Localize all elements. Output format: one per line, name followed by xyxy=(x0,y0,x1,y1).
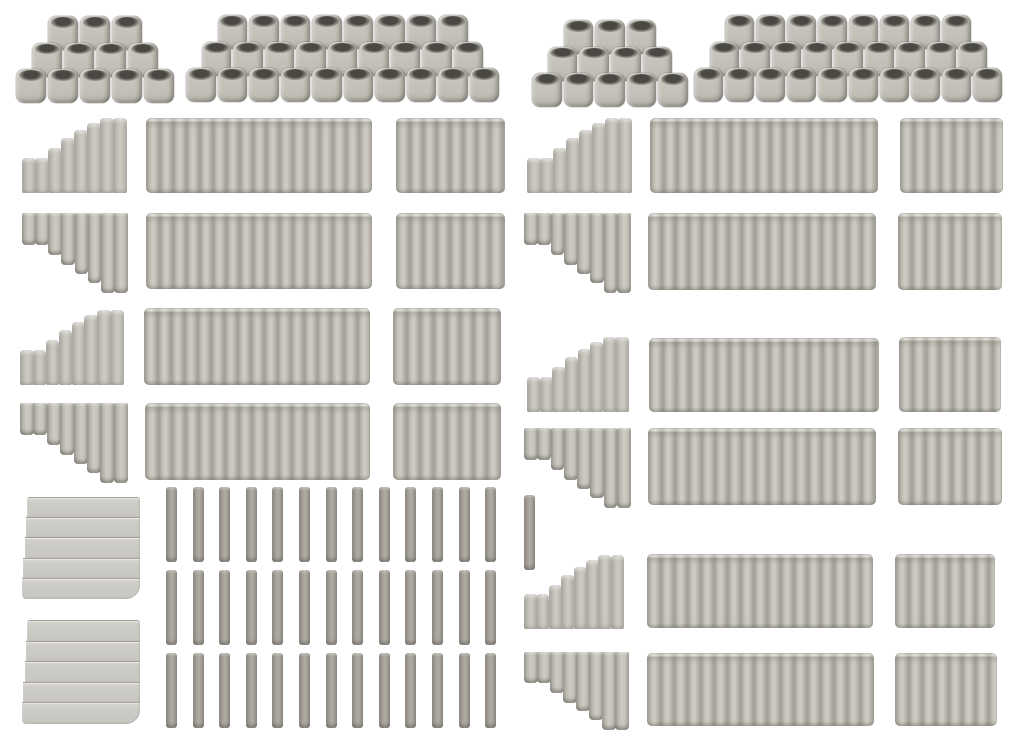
pile-opening-shadow xyxy=(19,70,44,80)
wall-section-short xyxy=(898,428,1002,505)
pile-opening-shadow xyxy=(759,16,783,26)
board-slat xyxy=(25,537,140,558)
pile-cylinder xyxy=(532,73,562,107)
pile-opening-shadow xyxy=(629,21,653,31)
wall-section-short xyxy=(895,653,997,726)
step-rib xyxy=(579,130,593,193)
pile-cylinder xyxy=(80,69,110,103)
step-rib xyxy=(72,322,86,385)
step-rib xyxy=(592,123,606,193)
step-rib xyxy=(552,367,565,412)
pile-opening-shadow xyxy=(960,43,984,53)
step-rib xyxy=(75,213,89,274)
step-rib xyxy=(537,652,551,683)
step-rib xyxy=(100,118,114,193)
board-slat xyxy=(25,661,140,683)
pile-opening-shadow xyxy=(330,43,354,53)
step-rib xyxy=(564,428,578,480)
single-pile-strip xyxy=(524,495,535,570)
single-pile-strip xyxy=(299,570,310,645)
step-rib xyxy=(110,310,124,385)
single-pile-strip xyxy=(326,653,337,728)
pile-opening-shadow xyxy=(283,69,307,79)
pile-opening-shadow xyxy=(566,21,590,31)
pile-opening-shadow xyxy=(267,43,291,53)
pile-cylinder xyxy=(470,68,500,102)
step-rib xyxy=(590,213,604,283)
pile-opening-shadow xyxy=(441,16,465,26)
step-rib xyxy=(100,403,114,483)
step-rib xyxy=(550,652,564,693)
pile-opening-shadow xyxy=(759,69,783,79)
pile-opening-shadow xyxy=(629,74,653,84)
step-rib xyxy=(598,555,611,629)
pile-opening-shadow xyxy=(598,74,622,84)
pile-cylinder xyxy=(564,73,594,107)
step-rib xyxy=(101,213,115,293)
pile-cylinder xyxy=(818,68,847,102)
pile-opening-shadow xyxy=(83,17,108,27)
wall-section-step-up xyxy=(524,555,623,629)
pile-cylinder xyxy=(756,68,785,102)
pile-opening-shadow xyxy=(35,44,60,54)
step-rib xyxy=(578,349,591,412)
wall-section-long xyxy=(145,403,370,480)
smooth-board-stack xyxy=(22,497,140,598)
pile-opening-shadow xyxy=(147,70,172,80)
step-rib xyxy=(47,403,61,445)
step-rib xyxy=(524,652,538,683)
step-rib xyxy=(537,213,551,245)
pile-opening-shadow xyxy=(51,17,76,27)
step-rib xyxy=(590,342,603,412)
pile-opening-shadow xyxy=(945,69,969,79)
pile-opening-shadow xyxy=(805,43,829,53)
pile-opening-shadow xyxy=(67,44,92,54)
single-pile-strip xyxy=(166,570,177,645)
pile-cylinder xyxy=(595,73,625,107)
step-rib xyxy=(574,567,587,629)
board-slat xyxy=(27,497,140,518)
step-rib xyxy=(33,350,47,385)
pile-opening-shadow xyxy=(566,74,590,84)
step-rib xyxy=(537,428,551,460)
step-rib xyxy=(615,652,629,730)
pile-cylinder xyxy=(16,69,46,103)
pile-cylinder xyxy=(627,73,657,107)
single-pile-strip xyxy=(405,653,416,728)
single-pile-strip xyxy=(272,487,283,562)
step-rib xyxy=(590,428,604,498)
single-pile-strip xyxy=(459,653,470,728)
model-parts-photo xyxy=(0,0,1024,748)
pile-opening-shadow xyxy=(945,16,969,26)
single-pile-strip xyxy=(219,653,230,728)
step-rib xyxy=(605,118,619,193)
pile-cylinder xyxy=(725,68,754,102)
single-pile-strip xyxy=(379,487,390,562)
pile-opening-shadow xyxy=(774,43,798,53)
pile-opening-shadow xyxy=(883,16,907,26)
board-slat xyxy=(26,641,140,663)
step-rib xyxy=(551,213,565,255)
pile-opening-shadow xyxy=(83,70,108,80)
pile-opening-shadow xyxy=(409,16,433,26)
pile-opening-shadow xyxy=(728,69,752,79)
step-rib xyxy=(59,330,73,385)
wall-section-step-down xyxy=(524,213,630,293)
step-rib xyxy=(611,555,624,629)
single-pile-strip xyxy=(326,487,337,562)
single-pile-strip xyxy=(432,487,443,562)
single-pile-strip xyxy=(272,653,283,728)
pile-opening-shadow xyxy=(821,16,845,26)
wall-section-step-up xyxy=(527,118,631,193)
pile-cylinder xyxy=(911,68,940,102)
pile-opening-shadow xyxy=(598,21,622,31)
pile-opening-shadow xyxy=(409,69,433,79)
single-pile-strip xyxy=(193,570,204,645)
pile-opening-shadow xyxy=(362,43,386,53)
pile-opening-shadow xyxy=(790,16,814,26)
pile-cylinder xyxy=(112,69,142,103)
wall-section-short xyxy=(396,118,505,193)
wall-section-step-up xyxy=(20,310,123,385)
step-rib xyxy=(577,428,591,489)
single-pile-strip xyxy=(219,570,230,645)
pile-cylinder xyxy=(880,68,909,102)
wall-section-long xyxy=(647,653,874,726)
step-rib xyxy=(617,213,631,293)
step-rib xyxy=(524,428,538,460)
single-pile-strip xyxy=(193,487,204,562)
step-rib xyxy=(551,428,565,470)
wall-section-step-up xyxy=(527,337,628,412)
pile-opening-shadow xyxy=(661,74,685,84)
pile-opening-shadow xyxy=(836,43,860,53)
wall-section-long xyxy=(146,118,372,193)
wall-section-long xyxy=(650,118,878,193)
step-rib xyxy=(524,594,537,629)
pile-opening-shadow xyxy=(743,43,767,53)
step-rib xyxy=(603,337,616,412)
wall-section-long xyxy=(648,213,876,290)
step-rib xyxy=(114,213,128,293)
single-pile-strip xyxy=(352,487,363,562)
pile-cylinder xyxy=(658,73,688,107)
step-rib xyxy=(114,403,128,483)
single-pile-strip xyxy=(379,653,390,728)
step-rib xyxy=(549,585,562,629)
pile-opening-shadow xyxy=(883,69,907,79)
single-pile-strip xyxy=(352,570,363,645)
pile-opening-shadow xyxy=(131,44,156,54)
pile-opening-shadow xyxy=(914,16,938,26)
pile-cylinder xyxy=(973,68,1002,102)
step-rib xyxy=(563,652,577,703)
pile-opening-shadow xyxy=(456,43,480,53)
single-pile-strip xyxy=(432,653,443,728)
pile-opening-shadow xyxy=(852,69,876,79)
single-pile-strip xyxy=(219,487,230,562)
single-pile-strip xyxy=(326,570,337,645)
pile-opening-shadow xyxy=(220,16,244,26)
step-rib xyxy=(35,158,49,193)
pile-cylinder xyxy=(281,68,311,102)
pile-opening-shadow xyxy=(252,16,276,26)
wall-section-step-down xyxy=(524,428,630,508)
pile-opening-shadow xyxy=(393,43,417,53)
step-rib xyxy=(602,652,616,730)
pile-cylinder xyxy=(787,68,816,102)
step-rib xyxy=(20,350,34,385)
board-slat xyxy=(26,517,140,538)
single-pile-strip xyxy=(485,653,496,728)
pile-opening-shadow xyxy=(441,69,465,79)
pile-opening-shadow xyxy=(99,44,124,54)
pile-opening-shadow xyxy=(867,43,891,53)
wall-section-long xyxy=(648,428,876,505)
pile-opening-shadow xyxy=(614,48,638,58)
pile-opening-shadow xyxy=(283,16,307,26)
step-rib xyxy=(60,403,74,455)
step-rib xyxy=(35,213,49,245)
pile-cylinder xyxy=(312,68,342,102)
pile-cylinder xyxy=(344,68,374,102)
pile-opening-shadow xyxy=(728,16,752,26)
smooth-board-stack xyxy=(22,620,140,723)
pile-opening-shadow xyxy=(790,69,814,79)
pile-opening-shadow xyxy=(712,43,736,53)
step-rib xyxy=(604,428,618,508)
wall-section-short xyxy=(898,213,1002,290)
single-pile-strip xyxy=(485,487,496,562)
pile-cylinder xyxy=(249,68,279,102)
step-rib xyxy=(553,148,567,193)
single-pile-strip xyxy=(459,570,470,645)
pile-cylinder xyxy=(942,68,971,102)
step-rib xyxy=(527,377,540,412)
single-pile-strip xyxy=(246,570,257,645)
step-rib xyxy=(617,428,631,508)
single-pile-strip xyxy=(405,487,416,562)
pile-opening-shadow xyxy=(315,16,339,26)
single-pile-strip xyxy=(432,570,443,645)
wall-section-short xyxy=(393,308,501,385)
pile-cylinder xyxy=(144,69,174,103)
pile-opening-shadow xyxy=(115,17,140,27)
single-pile-strip xyxy=(246,653,257,728)
step-rib xyxy=(577,213,591,274)
pile-cylinder xyxy=(48,69,78,103)
pile-cylinder xyxy=(438,68,468,102)
pile-cylinder xyxy=(849,68,878,102)
wall-section-long xyxy=(144,308,370,385)
pile-cylinder xyxy=(186,68,216,102)
step-rib xyxy=(61,213,75,265)
step-rib xyxy=(576,652,590,711)
pile-opening-shadow xyxy=(914,69,938,79)
step-rib xyxy=(97,310,111,385)
pile-opening-shadow xyxy=(929,43,953,53)
single-pile-strip xyxy=(166,653,177,728)
step-rib xyxy=(586,560,599,629)
pile-opening-shadow xyxy=(697,69,721,79)
board-slat xyxy=(23,558,140,579)
wall-section-long xyxy=(647,554,873,628)
pile-opening-shadow xyxy=(472,69,496,79)
step-rib xyxy=(61,138,75,193)
wall-section-step-down xyxy=(524,652,628,730)
pile-cylinder xyxy=(694,68,723,102)
step-rib xyxy=(87,123,101,193)
step-rib xyxy=(113,118,127,193)
step-rib xyxy=(46,340,60,385)
pile-cylinder xyxy=(218,68,248,102)
single-pile-strip xyxy=(299,653,310,728)
pile-opening-shadow xyxy=(976,69,1000,79)
pile-opening-shadow xyxy=(645,48,669,58)
wall-section-step-up xyxy=(22,118,126,193)
pile-cylinder xyxy=(407,68,437,102)
step-rib xyxy=(48,213,62,255)
step-rib xyxy=(540,377,553,412)
step-rib xyxy=(561,575,574,629)
wall-section-short xyxy=(899,337,1001,412)
pile-opening-shadow xyxy=(115,70,140,80)
step-rib xyxy=(540,158,554,193)
step-rib xyxy=(20,403,34,435)
step-rib xyxy=(33,403,47,435)
pile-opening-shadow xyxy=(378,16,402,26)
single-pile-strip xyxy=(246,487,257,562)
step-rib xyxy=(527,158,541,193)
step-rib xyxy=(589,652,603,720)
step-rib xyxy=(74,130,88,193)
step-rib xyxy=(604,213,618,293)
single-pile-strip xyxy=(459,487,470,562)
pile-opening-shadow xyxy=(51,70,76,80)
single-pile-strip xyxy=(272,570,283,645)
wall-section-short xyxy=(393,403,501,480)
board-slat xyxy=(22,702,140,724)
step-rib xyxy=(524,213,538,245)
pile-opening-shadow xyxy=(378,69,402,79)
wall-section-short xyxy=(895,554,995,628)
step-rib xyxy=(618,118,632,193)
pile-opening-shadow xyxy=(535,74,559,84)
pile-opening-shadow xyxy=(425,43,449,53)
step-rib xyxy=(565,357,578,412)
step-rib xyxy=(74,403,88,464)
pile-opening-shadow xyxy=(582,48,606,58)
step-rib xyxy=(615,337,628,412)
pile-opening-shadow xyxy=(346,16,370,26)
wall-section-step-down xyxy=(20,403,127,483)
single-pile-strip xyxy=(299,487,310,562)
step-rib xyxy=(87,403,101,473)
step-rib xyxy=(48,148,62,193)
wall-section-long xyxy=(649,338,879,412)
single-pile-strip xyxy=(193,653,204,728)
wall-section-short xyxy=(396,213,505,289)
pile-cylinder xyxy=(375,68,405,102)
pile-opening-shadow xyxy=(821,69,845,79)
board-slat xyxy=(27,620,140,642)
wall-section-long xyxy=(146,213,372,289)
pile-opening-shadow xyxy=(852,16,876,26)
step-rib xyxy=(564,213,578,265)
single-pile-strip xyxy=(485,570,496,645)
single-pile-strip xyxy=(352,653,363,728)
single-pile-strip xyxy=(379,570,390,645)
pile-opening-shadow xyxy=(252,69,276,79)
pile-opening-shadow xyxy=(220,69,244,79)
pile-opening-shadow xyxy=(315,69,339,79)
pile-opening-shadow xyxy=(346,69,370,79)
wall-section-short xyxy=(900,118,1003,193)
pile-opening-shadow xyxy=(299,43,323,53)
single-pile-strip xyxy=(166,487,177,562)
board-slat xyxy=(23,682,140,704)
step-rib xyxy=(22,158,36,193)
step-rib xyxy=(566,138,580,193)
board-slat xyxy=(22,578,140,599)
wall-section-step-down xyxy=(22,213,127,293)
step-rib xyxy=(536,594,549,629)
pile-opening-shadow xyxy=(550,48,574,58)
pile-opening-shadow xyxy=(189,69,213,79)
step-rib xyxy=(22,213,36,245)
pile-opening-shadow xyxy=(204,43,228,53)
step-rib xyxy=(84,315,98,385)
single-pile-strip xyxy=(405,570,416,645)
pile-opening-shadow xyxy=(236,43,260,53)
step-rib xyxy=(88,213,102,283)
pile-opening-shadow xyxy=(898,43,922,53)
